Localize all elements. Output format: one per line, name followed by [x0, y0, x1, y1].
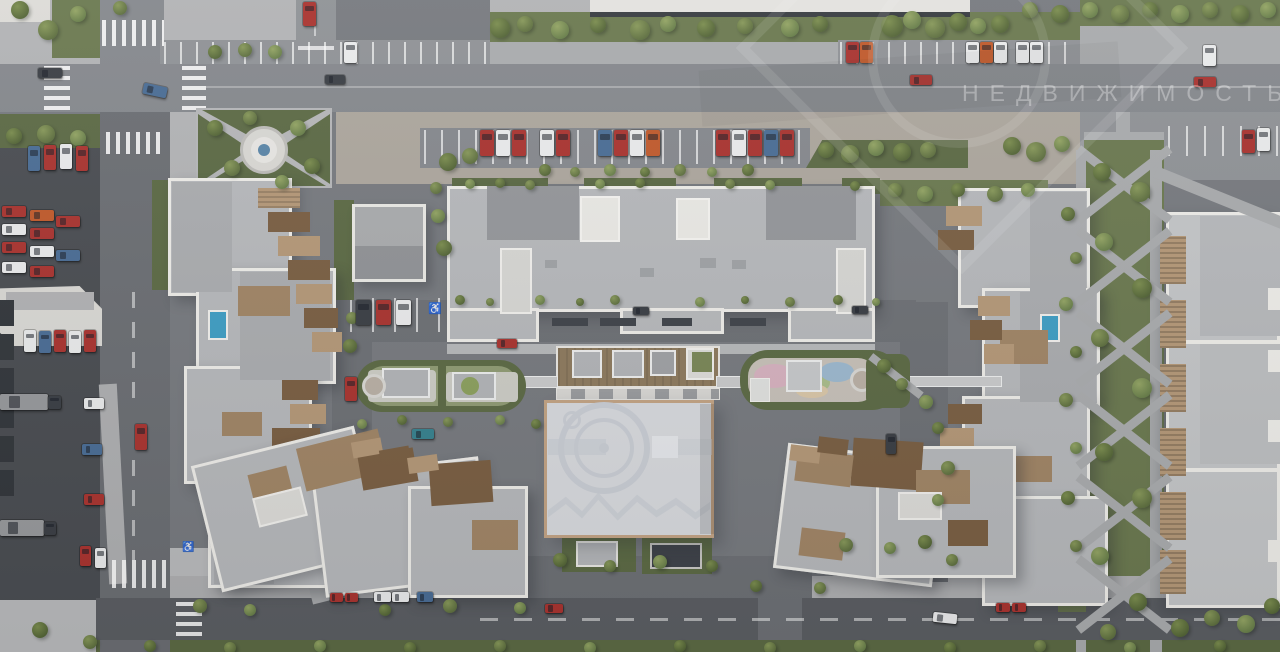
vignette [0, 0, 1280, 652]
aerial-site-plan: НЕДВИЖИМОСТЬ ♿♿♿ [0, 0, 1280, 652]
effects [0, 0, 1280, 652]
